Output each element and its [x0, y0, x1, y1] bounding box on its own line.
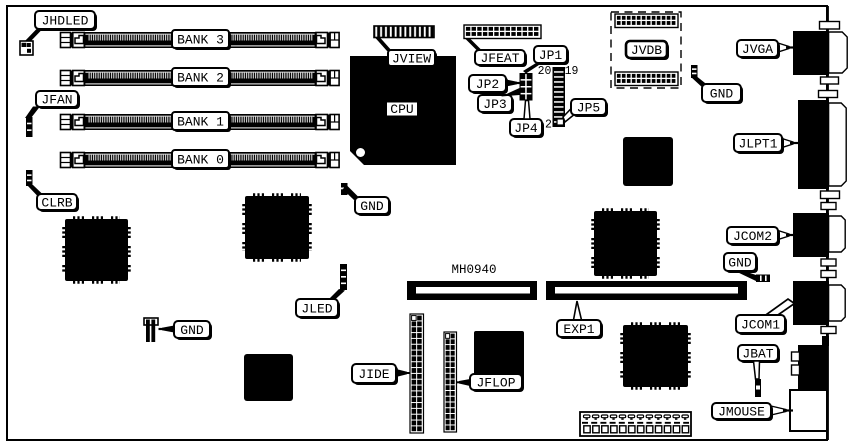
- svg-text:GND: GND: [360, 199, 384, 214]
- svg-text:JP4: JP4: [514, 121, 538, 136]
- svg-text:JP3: JP3: [483, 97, 506, 112]
- svg-text:JP1: JP1: [539, 48, 563, 63]
- svg-text:JCOM2: JCOM2: [733, 229, 772, 244]
- svg-text:CLRB: CLRB: [41, 196, 72, 211]
- svg-text:JLED: JLED: [301, 302, 332, 317]
- svg-text:19: 19: [565, 65, 579, 78]
- svg-text:JVDB: JVDB: [631, 43, 662, 58]
- svg-text:CPU: CPU: [390, 102, 413, 117]
- svg-text:JFAN: JFAN: [41, 93, 72, 108]
- svg-text:2: 2: [545, 119, 552, 132]
- svg-text:JVIEW: JVIEW: [392, 52, 431, 67]
- svg-text:JLPT1: JLPT1: [738, 137, 777, 152]
- svg-text:JP5: JP5: [577, 101, 600, 116]
- svg-text:BANK 0: BANK 0: [177, 153, 224, 168]
- svg-text:JFLOP: JFLOP: [476, 376, 515, 391]
- svg-text:BANK 2: BANK 2: [177, 71, 224, 86]
- svg-text:JCOM1: JCOM1: [741, 318, 780, 333]
- svg-text:GND: GND: [728, 256, 752, 271]
- svg-text:JMOUSE: JMOUSE: [718, 405, 765, 420]
- svg-text:20: 20: [538, 65, 552, 78]
- svg-text:MH0940: MH0940: [451, 263, 496, 277]
- svg-text:JHDLED: JHDLED: [42, 14, 89, 29]
- svg-text:JP2: JP2: [476, 77, 499, 92]
- svg-text:BANK 1: BANK 1: [177, 115, 224, 130]
- svg-text:GND: GND: [710, 87, 734, 102]
- svg-text:JVGA: JVGA: [742, 42, 773, 57]
- svg-text:JIDE: JIDE: [358, 367, 389, 382]
- svg-text:BANK 3: BANK 3: [177, 33, 224, 48]
- svg-text:EXP1: EXP1: [563, 322, 594, 337]
- svg-text:JFEAT: JFEAT: [480, 51, 519, 66]
- svg-text:JBAT: JBAT: [742, 347, 773, 362]
- svg-text:GND: GND: [180, 323, 204, 338]
